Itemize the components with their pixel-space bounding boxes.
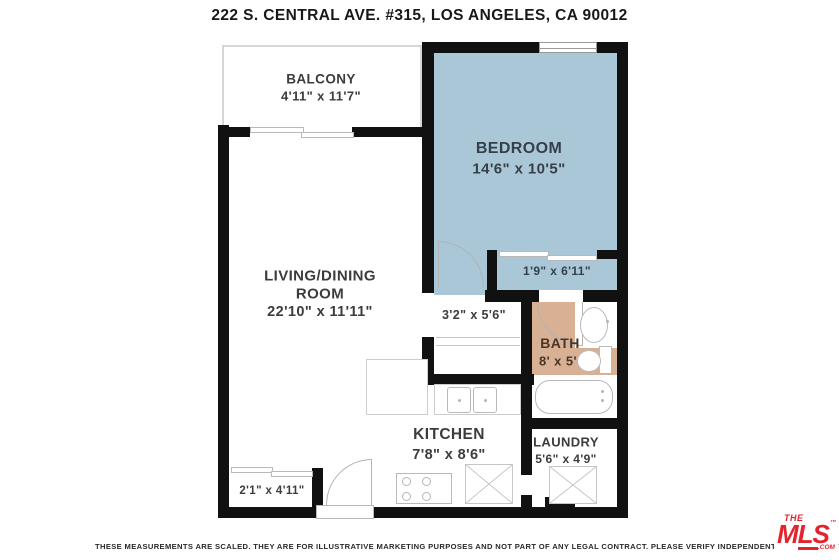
sink-drain-dot xyxy=(458,399,461,402)
balcony-outline xyxy=(222,45,422,129)
balcony-slider-panel xyxy=(301,132,354,138)
laundry-dims: 5'6" x 4'9" xyxy=(535,452,597,466)
laundry-label: LAUNDRY xyxy=(533,435,599,450)
stove-burner xyxy=(402,492,411,501)
page-title: 222 S. CENTRAL AVE. #315, LOS ANGELES, C… xyxy=(0,7,839,25)
kitchen-label: KITCHEN xyxy=(413,426,485,444)
wall xyxy=(521,495,532,518)
wall xyxy=(218,507,316,518)
balcony-dims: 4'11" x 11'7" xyxy=(281,89,361,104)
wall xyxy=(521,418,617,429)
hall-closet-line xyxy=(436,337,520,338)
bath-sink-faucet xyxy=(606,320,609,323)
bath-sink xyxy=(580,307,608,343)
entry-door-arc xyxy=(326,459,372,505)
bath-dims: 8' x 5' xyxy=(539,354,577,369)
living-room-label-line1: LIVING/DINING xyxy=(264,268,376,285)
wall xyxy=(583,290,628,302)
bedroom-dims: 14'6" x 10'5" xyxy=(472,161,565,178)
wall xyxy=(374,507,628,518)
wall xyxy=(218,127,250,137)
wall xyxy=(422,42,434,293)
living-room-dims: 22'10" x 11'11" xyxy=(267,304,373,320)
entry-closet-dims: 2'1" x 4'11" xyxy=(239,485,304,497)
bedroom-window xyxy=(539,42,597,53)
stove-burner xyxy=(402,477,411,486)
entry-closet-slider-panel xyxy=(231,467,273,473)
entry-door-sill xyxy=(316,505,374,519)
mls-logo-tm: ™ xyxy=(830,520,836,526)
balcony-slider-panel xyxy=(250,127,304,133)
wall xyxy=(521,429,532,475)
wall xyxy=(617,42,628,518)
stove-burner xyxy=(422,492,431,501)
balcony-label: BALCONY xyxy=(286,72,356,87)
mls-logo-com: .COM xyxy=(818,545,835,552)
hall-closet-dims: 3'2" x 5'6" xyxy=(442,308,506,322)
toilet-bowl xyxy=(577,350,601,372)
wall xyxy=(597,250,617,259)
bathtub-faucet xyxy=(601,390,604,393)
mls-logo: THE MLS ™ .COM xyxy=(774,511,838,559)
mls-logo-bar xyxy=(798,547,818,550)
closet-slider-panel xyxy=(499,251,549,257)
footer-disclaimer: THESE MEASUREMENTS ARE SCALED. THEY ARE … xyxy=(95,542,839,551)
stove-burner xyxy=(422,477,431,486)
bathtub xyxy=(535,380,613,414)
wall xyxy=(218,125,229,518)
hall-closet-line xyxy=(436,345,520,346)
living-room-label-line2: ROOM xyxy=(296,286,344,303)
refrigerator-xbox xyxy=(465,464,513,504)
wall xyxy=(521,290,532,430)
washer-dryer-xbox xyxy=(549,466,597,504)
sink-drain-dot xyxy=(484,399,487,402)
bathtub-faucet xyxy=(601,399,604,402)
entry-closet-slider-panel xyxy=(271,471,313,477)
disclaimer-text: THESE MEASUREMENTS ARE SCALED. THEY ARE … xyxy=(95,542,787,551)
closet-slider-panel xyxy=(547,255,597,261)
bedroom-label: BEDROOM xyxy=(476,140,562,158)
bedroom-closet-dims: 1'9" x 6'11" xyxy=(523,264,591,278)
wall xyxy=(422,42,539,53)
kitchen-peninsula-counter xyxy=(366,359,428,415)
floor-plan-page: 222 S. CENTRAL AVE. #315, LOS ANGELES, C… xyxy=(0,0,839,560)
kitchen-dims: 7'8" x 8'6" xyxy=(412,447,485,463)
bath-label: BATH xyxy=(540,335,579,351)
